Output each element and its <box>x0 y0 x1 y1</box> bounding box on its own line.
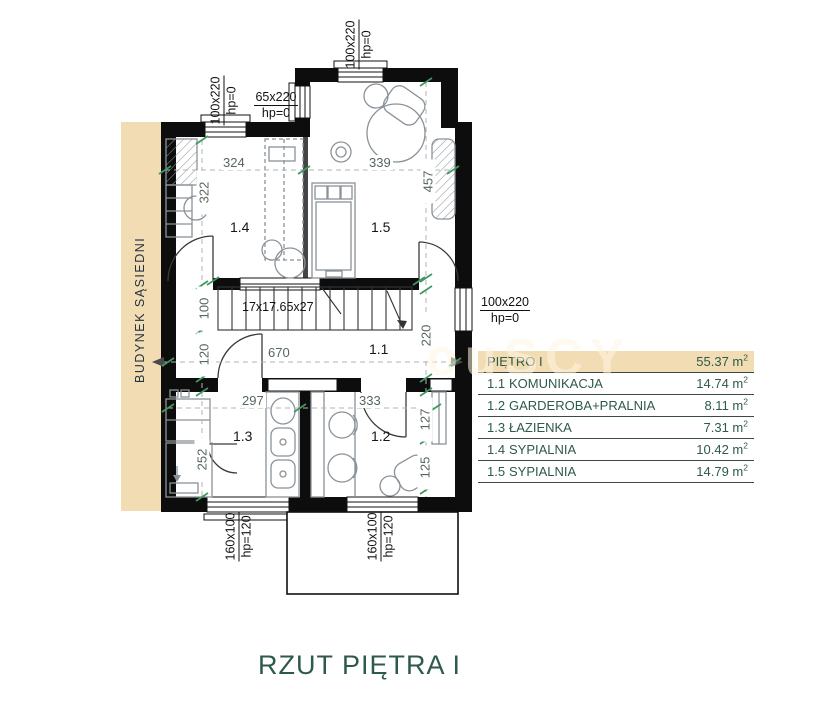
legend-header-area: 55.37 m2 <box>696 354 748 369</box>
window-label-top-left: 100x220 hp=0 <box>209 71 240 131</box>
room-area: 8.11 m2 <box>704 398 748 413</box>
window-sill: hp=120 <box>382 507 397 567</box>
room-label-1-3: 1.3 <box>233 428 252 444</box>
room-number: 1.1 <box>487 376 509 391</box>
window-sill: hp=0 <box>250 106 302 121</box>
legend-header-label: PIĘTRO I <box>487 354 543 369</box>
legend-row: 1.3ŁAZIENKA 7.31 m2 <box>478 417 754 439</box>
window-sill: hp=0 <box>476 311 534 326</box>
room-area: 14.74 m2 <box>696 376 748 391</box>
window-size: 100x220 <box>209 76 225 126</box>
dim-100: 100 <box>197 287 212 331</box>
window-size: 160x100 <box>366 512 382 562</box>
floorplan-page: BUDYNEK SĄSIEDNI 1.4 1.5 1.1 1.3 1.2 17x… <box>0 0 826 727</box>
legend-row: 1.1KOMUNIKACJA 14.74 m2 <box>478 373 754 395</box>
window-sill: hp=120 <box>240 507 255 567</box>
dim-120: 120 <box>197 333 212 377</box>
room-label-1-2: 1.2 <box>371 428 390 444</box>
legend-row: 1.2GARDEROBA+PRALNIA 8.11 m2 <box>478 395 754 417</box>
legend-row: 1.5SYPIALNIA 14.79 m2 <box>478 461 754 483</box>
dim-125: 125 <box>418 446 433 490</box>
doors <box>168 236 458 473</box>
window-size: 160x100 <box>224 512 240 562</box>
window-label-bottom-left: 160x100 hp=120 <box>224 507 255 567</box>
dim-127: 127 <box>418 398 433 442</box>
room-name: SYPIALNIA <box>509 442 576 457</box>
legend-row: 1.4SYPIALNIA 10.42 m2 <box>478 439 754 461</box>
neighbour-building-label: BUDYNEK SĄSIEDNI <box>133 263 149 383</box>
dim-339: 339 <box>367 155 393 170</box>
room-area: 7.31 m2 <box>704 420 749 435</box>
window-sill: hp=0 <box>225 71 240 131</box>
dim-297: 297 <box>240 393 266 408</box>
dim-322: 322 <box>197 171 212 215</box>
dim-333: 333 <box>357 393 383 408</box>
window-label-bottom-right: 160x100 hp=120 <box>366 507 397 567</box>
room-number: 1.5 <box>487 464 509 479</box>
dim-324: 324 <box>221 155 247 170</box>
window-sill: hp=0 <box>360 15 375 75</box>
window-size: 100x220 <box>480 295 530 311</box>
dim-457: 457 <box>421 160 436 204</box>
window-label-65: 65x220 hp=0 <box>250 90 302 121</box>
room-label-1-5: 1.5 <box>371 219 390 235</box>
window-label-right: 100x220 hp=0 <box>476 295 534 326</box>
room-name: GARDEROBA+PRALNIA <box>509 398 655 413</box>
window-label-top: 100x220 hp=0 <box>344 15 375 75</box>
window-size: 100x220 <box>344 20 360 70</box>
room-area: 14.79 m2 <box>696 464 748 479</box>
room-legend-table: PIĘTRO I 55.37 m2 1.1KOMUNIKACJA 14.74 m… <box>478 351 754 483</box>
legend-header-row: PIĘTRO I 55.37 m2 <box>478 351 754 373</box>
room-number: 1.3 <box>487 420 509 435</box>
page-title: RZUT PIĘTRA I <box>258 650 461 681</box>
dim-670: 670 <box>266 345 292 360</box>
room-number: 1.4 <box>487 442 509 457</box>
room-name: SYPIALNIA <box>509 464 576 479</box>
stairs-label: 17x17.65x27 <box>242 300 314 314</box>
room-name: KOMUNIKACJA <box>509 376 603 391</box>
room-number: 1.2 <box>487 398 509 413</box>
room-label-1-1: 1.1 <box>369 341 388 357</box>
dim-252: 252 <box>195 438 210 482</box>
window-size: 65x220 <box>254 90 297 106</box>
dim-220: 220 <box>419 314 434 358</box>
room-label-1-4: 1.4 <box>230 219 249 235</box>
room-area: 10.42 m2 <box>696 442 748 457</box>
room-name: ŁAZIENKA <box>509 420 572 435</box>
